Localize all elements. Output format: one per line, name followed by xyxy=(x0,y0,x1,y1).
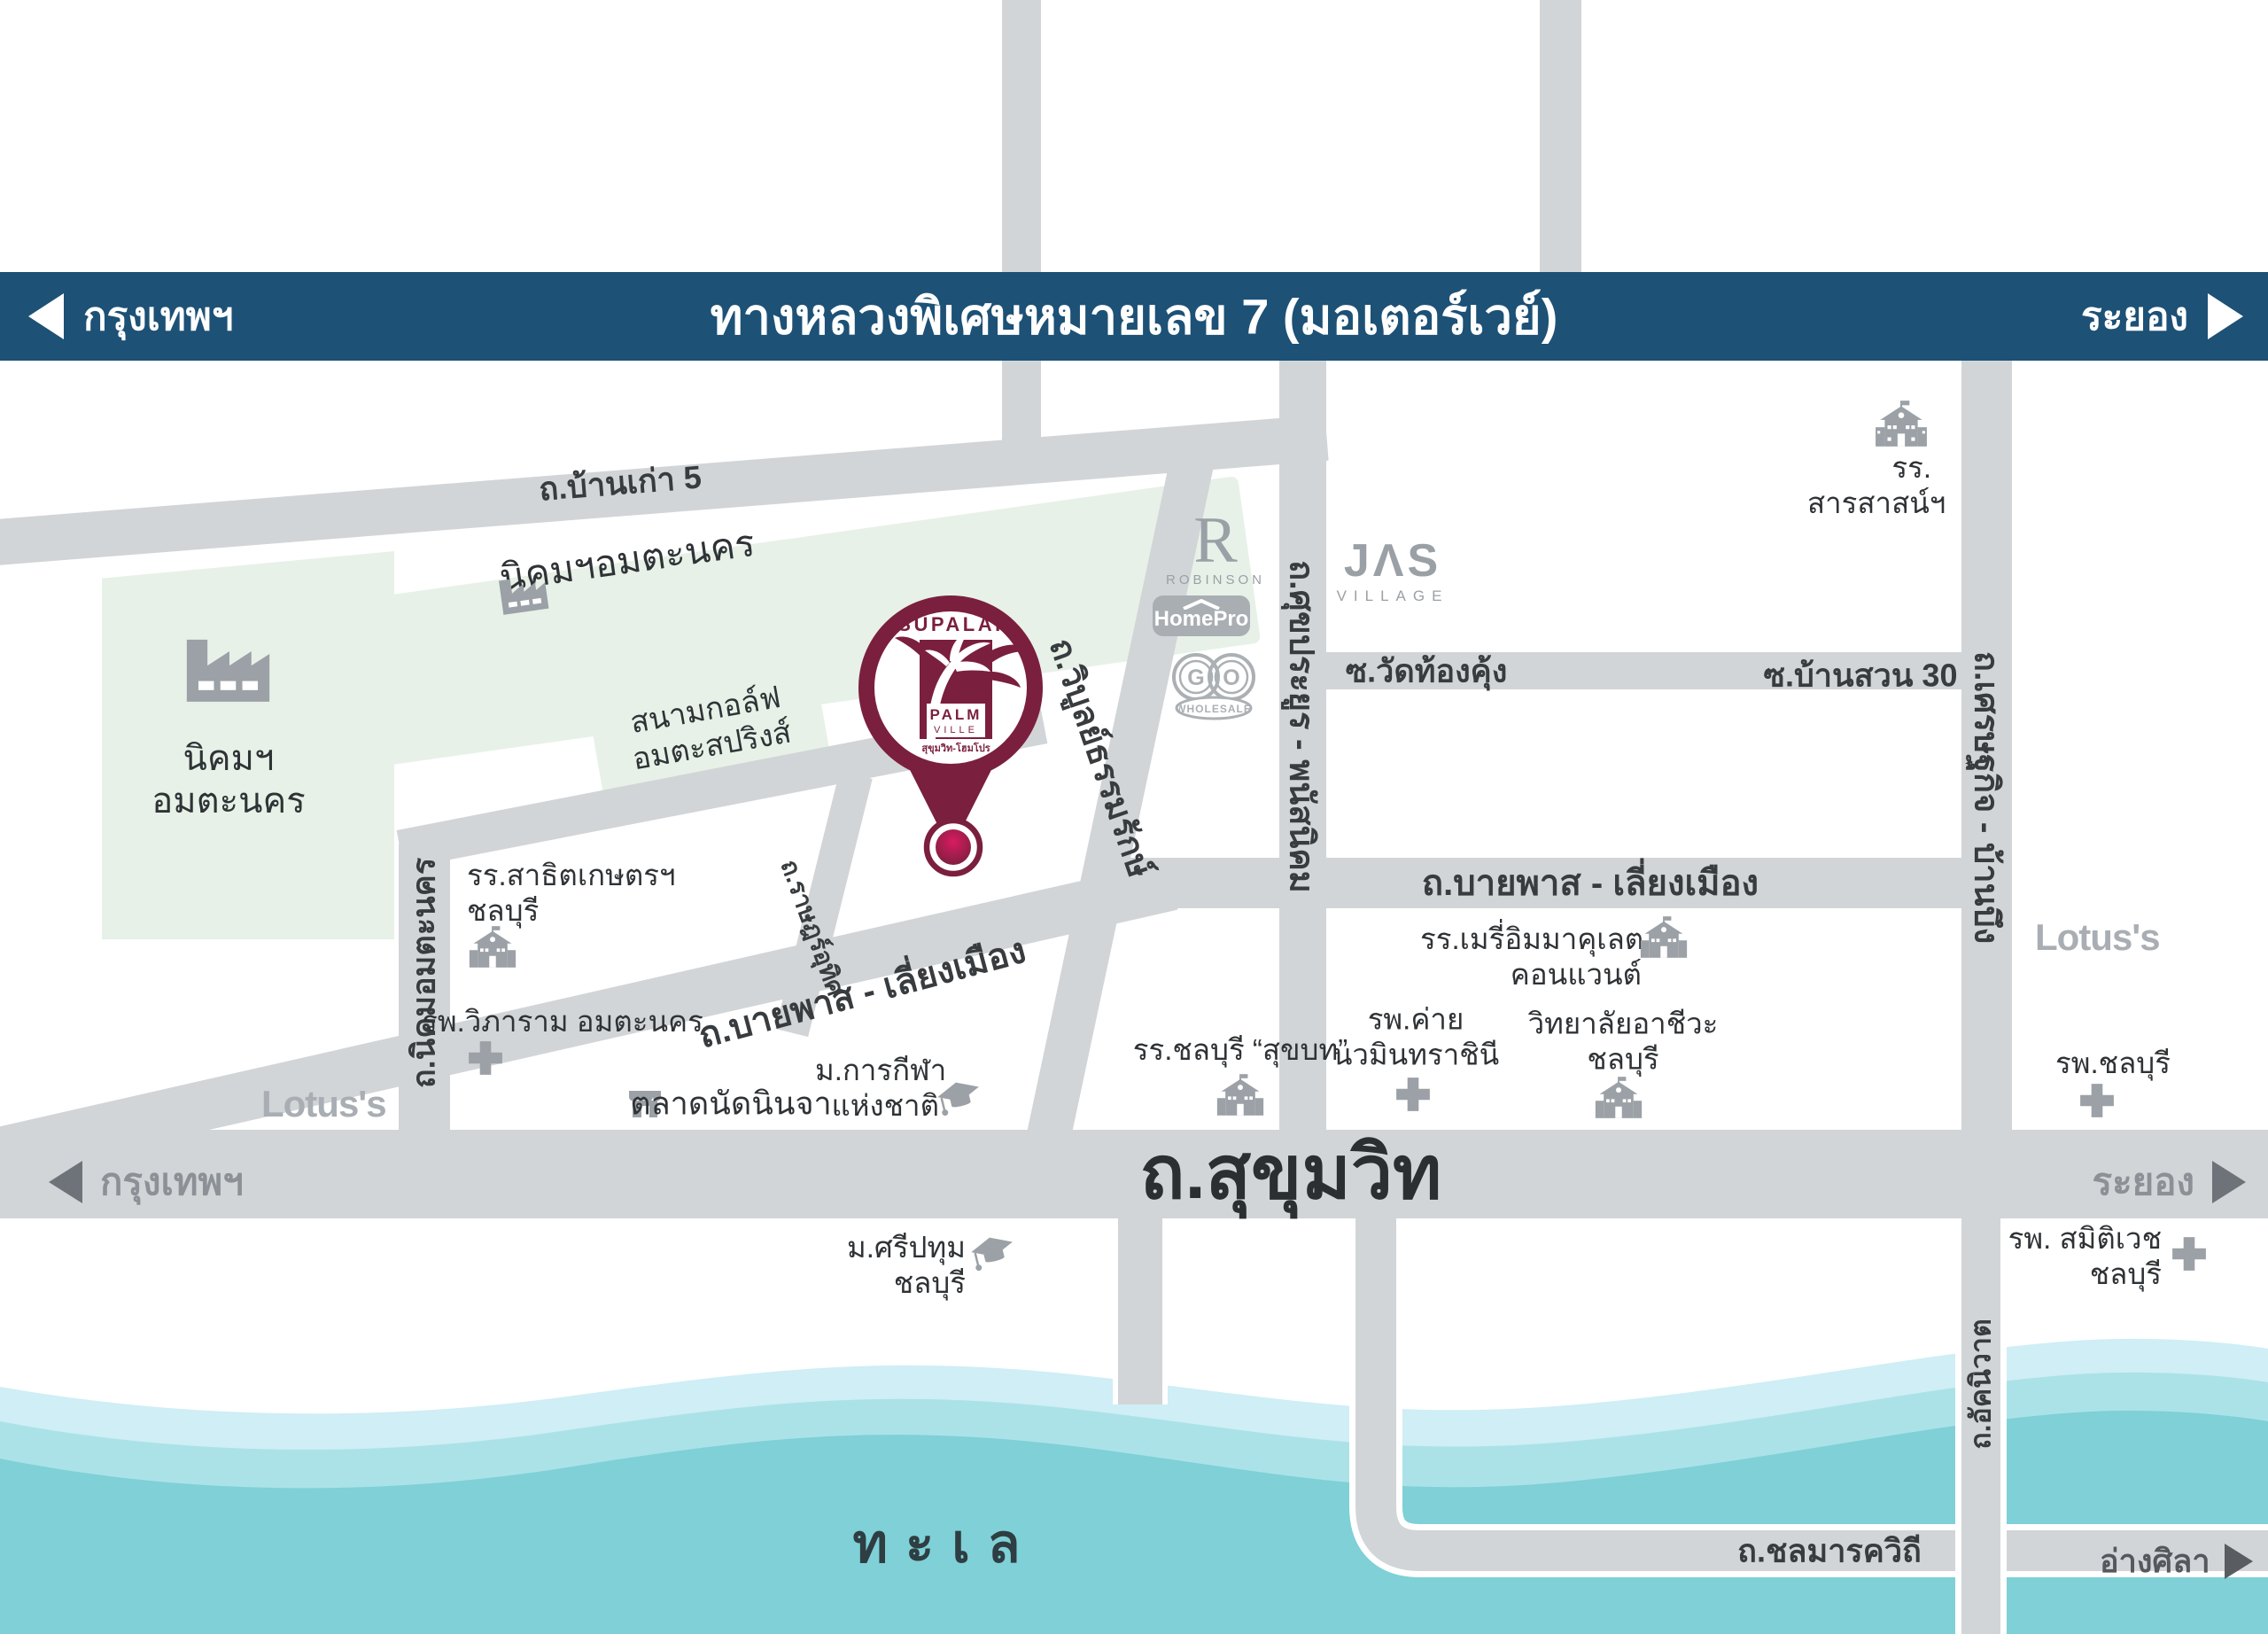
factory-icon xyxy=(495,571,551,616)
samitivej-label: รพ. สมิติเวช ชลบุรี xyxy=(1984,1221,2162,1291)
arrow-left-icon xyxy=(28,293,64,339)
hospital-cross-icon xyxy=(467,1039,504,1077)
arrow-right-icon xyxy=(2208,293,2243,339)
pin-palm: PALM xyxy=(930,706,983,723)
road-label-watthongkhung: ซ.วัดท้องคุ้ง xyxy=(1346,646,1508,696)
banner-right-label: ระยอง xyxy=(2081,285,2188,347)
sripatum-label: ม.ศรีปทุม ชลบุรี xyxy=(846,1230,966,1300)
pin-subtitle: สุขุมวิท-โฮมโปร xyxy=(921,742,990,755)
sripatum-line2: ชลบุรี xyxy=(846,1265,966,1301)
satit-line2: ชลบุรี xyxy=(467,893,676,929)
sarasas-school-label: รร. สารสาสน์ฯ xyxy=(1807,450,1931,520)
sukhumvit-left: กรุงเทพฯ xyxy=(49,1153,244,1211)
road-label-bypass-horizontal: ถ.บายพาส - เลี่ยงเมือง xyxy=(1422,854,1759,911)
lotus-right-logo: Lotus's xyxy=(2035,916,2160,959)
road-label-chonmarak: ถ.ชลมารควิถี xyxy=(1737,1526,1922,1576)
sukhumvit-right: ระยอง xyxy=(2093,1153,2246,1211)
jas-village-logo: JΛS VILLAGE xyxy=(1337,538,1449,605)
angsila-label: อ่างศิลา xyxy=(2100,1536,2210,1586)
go-wholesale-logo: G O WHOLESALE xyxy=(1161,652,1267,721)
vocational-college-label: วิทยาลัยอาชีวะ ชลบุรี xyxy=(1528,1006,1719,1076)
svg-text:O: O xyxy=(1223,665,1239,690)
svg-text:WHOLESALE: WHOLESALE xyxy=(1176,703,1252,715)
road-label-bansuan: ซ.บ้านสวน 30 xyxy=(1764,650,1958,701)
sportu-line1: ม.การกีฬา xyxy=(815,1053,939,1088)
samitivej-line1: รพ. สมิติเวช xyxy=(1984,1221,2162,1257)
navamin-line1: รพ.ค่าย xyxy=(1332,1001,1499,1037)
sripatum-line1: ม.ศรีปทุม xyxy=(846,1230,966,1265)
arrow-left-icon xyxy=(49,1161,82,1203)
pin-ville: VILLE xyxy=(934,725,978,735)
merry-immaculate-label: รร.เมรี่อิมมาคุเลต คอนแวนต์ xyxy=(1420,922,1642,992)
navamin-hospital-label: รพ.ค่าย นวมินทราชินี xyxy=(1332,1001,1499,1071)
banner-title: ทางหลวงพิเศษหมายเลข 7 (มอเตอร์เวย์) xyxy=(711,277,1558,356)
road-label-setthakit: ถ.เศรษฐกิจ - บ้านบึง xyxy=(1961,651,2015,944)
sukhumvit-left-label: กรุงเทพฯ xyxy=(100,1153,244,1211)
homepro-wordmark: HomePro xyxy=(1153,609,1250,630)
school-icon xyxy=(1594,1077,1643,1118)
arrow-right-icon xyxy=(2212,1161,2246,1203)
robinson-wordmark: ROBINSON xyxy=(1166,572,1265,587)
road-label-sukhumvit: ถ.สุขุมวิท xyxy=(1140,1112,1442,1231)
arrow-right-icon xyxy=(2225,1544,2253,1579)
hospital-cross-icon xyxy=(2171,1235,2208,1272)
hospital-cross-icon xyxy=(1394,1076,1432,1113)
sukkhabot-school-label: รร.ชลบุรี “สุขบท” xyxy=(1133,1032,1348,1068)
sportu-line2: แห่งชาติ xyxy=(815,1088,939,1124)
hospital-cross-icon xyxy=(2078,1082,2116,1119)
samitivej-line2: ชลบุรี xyxy=(1984,1257,2162,1292)
merry-line1: รร.เมรี่อิมมาคุเลต xyxy=(1420,922,1642,957)
factory-icon xyxy=(182,634,275,703)
amata-line2: อมตะนคร xyxy=(151,780,305,822)
robinson-r: R xyxy=(1166,511,1265,571)
ninja-market-label: ตลาดนัดนินจา xyxy=(630,1084,832,1122)
homepro-logo: HomePro xyxy=(1153,595,1250,636)
banner-left-label: กรุงเทพฯ xyxy=(83,285,234,347)
vocational-line1: วิทยาลัยอาชีวะ xyxy=(1528,1006,1719,1041)
pin-brand: SUPALAI xyxy=(897,613,1003,635)
vocational-line2: ชลบุรี xyxy=(1528,1041,1719,1077)
jas-sub: VILLAGE xyxy=(1337,587,1449,605)
school-icon xyxy=(1874,401,1929,447)
banner-right: ระยอง xyxy=(2081,285,2243,347)
sarasas-line2: สารสาสน์ฯ xyxy=(1807,486,1931,521)
navamin-line2: นวมินทราชินี xyxy=(1332,1037,1499,1072)
road-label-sukprayoon: ถ.ศุขประยูร - พนัสนิคม xyxy=(1276,560,1330,893)
sport-university-label: ม.การกีฬา แห่งชาติ xyxy=(815,1053,939,1123)
satit-line1: รร.สาธิตเกษตรฯ xyxy=(467,858,676,893)
pin-dot xyxy=(936,829,971,865)
lotus-left-logo: Lotus's xyxy=(261,1083,386,1125)
robinson-logo: R ROBINSON xyxy=(1166,511,1265,587)
satit-kaset-label: รร.สาธิตเกษตรฯ ชลบุรี xyxy=(467,858,676,928)
banner-left: กรุงเทพฯ xyxy=(28,285,234,347)
svg-text:G: G xyxy=(1187,665,1204,690)
vibharam-hospital-label: รพ.วิภาราม อมตะนคร xyxy=(422,1004,703,1039)
angsila-direction: อ่างศิลา xyxy=(2100,1536,2253,1586)
school-icon xyxy=(1639,916,1689,958)
sea-label: ทะเล xyxy=(852,1502,1037,1586)
road-label-nikhom-amata: ถ.นิคมอมตะนคร xyxy=(399,858,449,1088)
sukhumvit-right-label: ระยอง xyxy=(2093,1153,2194,1211)
chonburi-hospital-label: รพ.ชลบุรี xyxy=(2055,1046,2171,1081)
amata-line1: นิคมฯ xyxy=(151,737,305,780)
school-icon xyxy=(468,926,517,968)
road-label-akkaniwat: ถ.อัคนิวาต xyxy=(1959,1319,2004,1449)
merry-line2: คอนแวนต์ xyxy=(1420,957,1642,992)
school-icon xyxy=(1216,1074,1265,1116)
amata-nakorn-label: นิคมฯ อมตะนคร xyxy=(151,737,305,822)
supalai-palmville-pin: SUPALAI PALM VILLE สุขุมวิท-โฮมโปร xyxy=(850,585,1054,895)
location-map: พนัสนิคม วังจันทร์ กรุงเทพฯ ทางหลวงพิเศษ… xyxy=(0,0,2268,1634)
jas-wordmark: JΛS xyxy=(1337,538,1449,584)
sarasas-line1: รร. xyxy=(1807,450,1931,486)
motorway-banner: กรุงเทพฯ ทางหลวงพิเศษหมายเลข 7 (มอเตอร์เ… xyxy=(0,272,2268,361)
